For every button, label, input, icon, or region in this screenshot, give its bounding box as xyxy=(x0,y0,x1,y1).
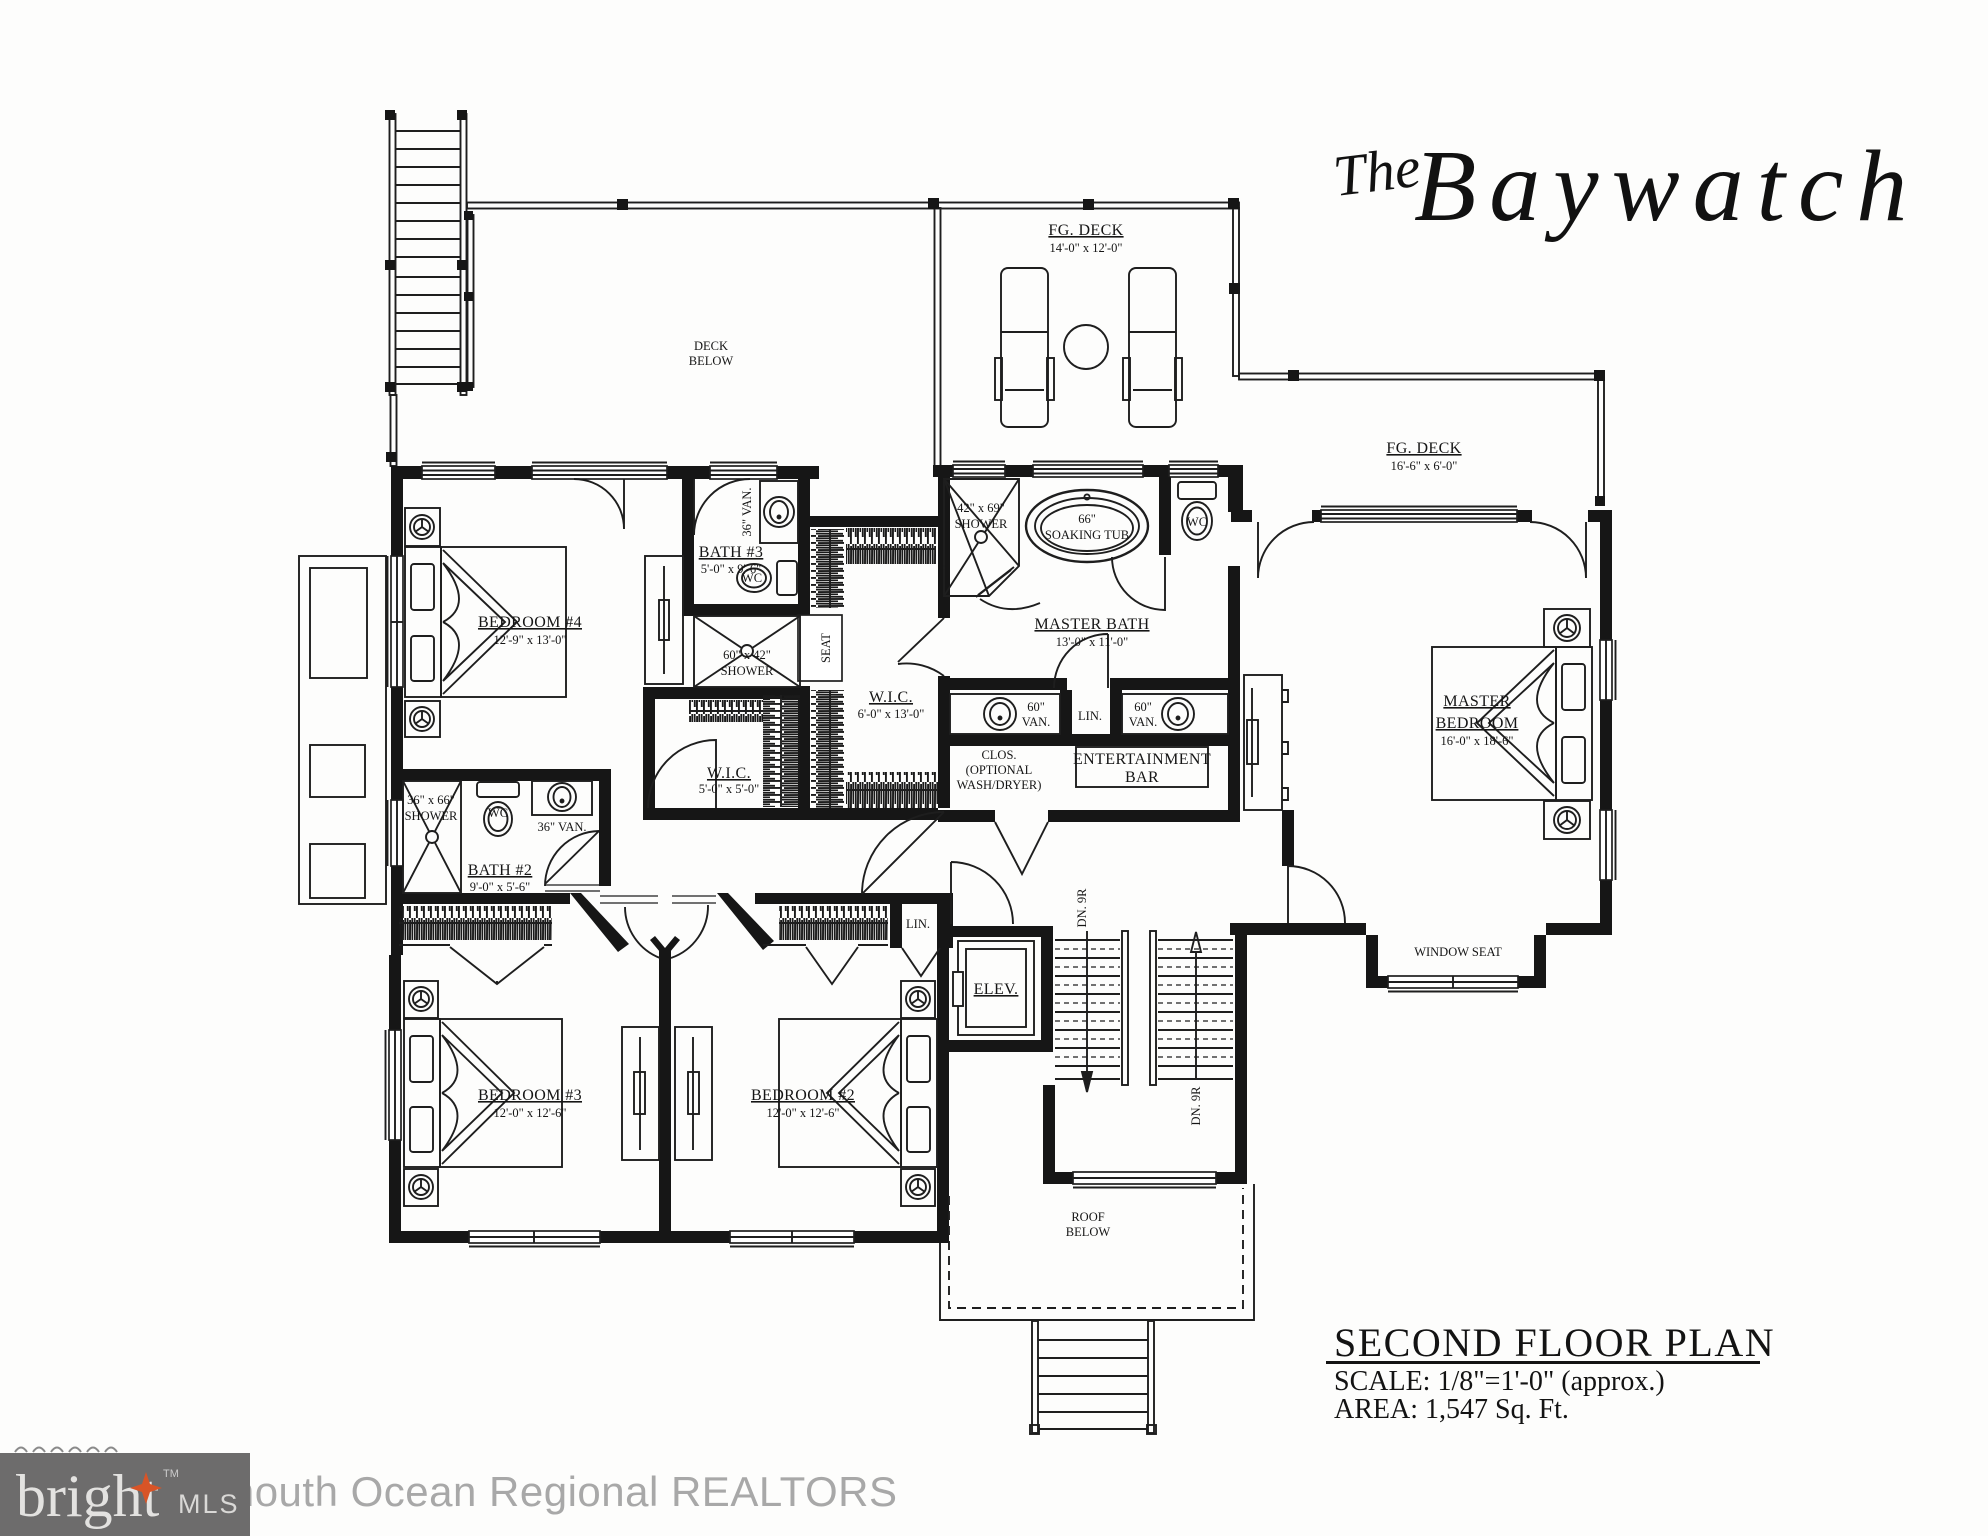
svg-text:16'-0" x 18'-6": 16'-0" x 18'-6" xyxy=(1440,734,1513,748)
svg-text:SHOWER: SHOWER xyxy=(955,517,1008,531)
svg-text:BELOW: BELOW xyxy=(1066,1225,1111,1239)
svg-text:9'-0" x 5'-6": 9'-0" x 5'-6" xyxy=(470,880,531,894)
svg-text:BELOW: BELOW xyxy=(689,354,734,368)
svg-text:SOAKING TUB: SOAKING TUB xyxy=(1045,528,1129,542)
svg-text:36" VAN.: 36" VAN. xyxy=(740,487,754,536)
svg-text:SECOND FLOOR PLAN: SECOND FLOOR PLAN xyxy=(1334,1320,1775,1365)
svg-text:14'-0" x 12'-0": 14'-0" x 12'-0" xyxy=(1049,241,1122,255)
svg-text:(OPTIONAL: (OPTIONAL xyxy=(966,763,1033,777)
svg-text:Monmouth Ocean Regional REALTO: Monmouth Ocean Regional REALTORS xyxy=(136,1468,897,1515)
svg-text:WASH/DRYER): WASH/DRYER) xyxy=(957,778,1042,792)
svg-text:SHOWER: SHOWER xyxy=(721,664,774,678)
svg-text:TM: TM xyxy=(163,1468,179,1480)
svg-text:12'-0" x 12'-6": 12'-0" x 12'-6" xyxy=(493,1106,566,1120)
svg-text:WINDOW SEAT: WINDOW SEAT xyxy=(1414,945,1502,959)
svg-text:LIN.: LIN. xyxy=(906,917,930,931)
svg-text:FG. DECK: FG. DECK xyxy=(1386,440,1461,457)
svg-text:The: The xyxy=(1330,134,1424,209)
svg-text:BATH #2: BATH #2 xyxy=(468,862,533,879)
svg-text:WC: WC xyxy=(488,806,508,820)
svg-text:VAN.: VAN. xyxy=(1022,715,1051,729)
svg-text:MASTER: MASTER xyxy=(1443,693,1510,710)
svg-text:6'-0" x 13'-0": 6'-0" x 13'-0" xyxy=(858,707,925,721)
svg-text:BEDROOM: BEDROOM xyxy=(1436,715,1519,732)
svg-text:VAN.: VAN. xyxy=(1129,715,1158,729)
svg-text:60": 60" xyxy=(1134,700,1152,714)
svg-text:ROOF: ROOF xyxy=(1071,1210,1104,1224)
svg-text:42" x 69": 42" x 69" xyxy=(957,501,1005,515)
svg-text:BEDROOM #4: BEDROOM #4 xyxy=(478,614,582,631)
svg-text:DN. 9R: DN. 9R xyxy=(1075,888,1089,928)
svg-text:12'-9" x 13'-0": 12'-9" x 13'-0" xyxy=(493,633,566,647)
svg-text:60" x 42": 60" x 42" xyxy=(723,648,771,662)
svg-text:36" VAN.: 36" VAN. xyxy=(537,820,586,834)
svg-text:DECK: DECK xyxy=(694,339,728,353)
svg-text:BAR: BAR xyxy=(1125,769,1159,786)
svg-text:ENTERTAINMENT: ENTERTAINMENT xyxy=(1073,751,1211,768)
svg-text:66": 66" xyxy=(1078,512,1096,526)
svg-text:13'-0" x 11'-0": 13'-0" x 11'-0" xyxy=(1056,635,1129,649)
svg-text:16'-6" x 6'-0": 16'-6" x 6'-0" xyxy=(1391,459,1458,473)
svg-text:bright: bright xyxy=(16,1463,160,1529)
svg-text:SCALE: 1/8"=1'-0" (approx.): SCALE: 1/8"=1'-0" (approx.) xyxy=(1334,1366,1665,1397)
svg-text:FG. DECK: FG. DECK xyxy=(1048,222,1123,239)
svg-text:W.I.C.: W.I.C. xyxy=(707,765,751,782)
svg-text:36" x 66": 36" x 66" xyxy=(407,793,455,807)
svg-text:WC: WC xyxy=(1187,515,1207,529)
svg-text:SHOWER: SHOWER xyxy=(405,809,458,823)
svg-text:WC: WC xyxy=(742,571,762,585)
svg-text:AREA: 1,547 Sq. Ft.: AREA: 1,547 Sq. Ft. xyxy=(1334,1394,1569,1425)
svg-text:Baywatch: Baywatch xyxy=(1414,130,1920,243)
svg-text:ELEV.: ELEV. xyxy=(974,981,1019,998)
svg-text:12'-0" x 12'-6": 12'-0" x 12'-6" xyxy=(766,1106,839,1120)
svg-text:DN. 9R: DN. 9R xyxy=(1189,1086,1203,1126)
svg-text:W.I.C.: W.I.C. xyxy=(869,689,913,706)
svg-text:SEAT: SEAT xyxy=(819,633,833,663)
svg-text:MASTER BATH: MASTER BATH xyxy=(1034,616,1149,633)
svg-text:BEDROOM #3: BEDROOM #3 xyxy=(478,1087,582,1104)
svg-text:MLS: MLS xyxy=(178,1489,240,1519)
svg-text:5'-0" x 5'-0": 5'-0" x 5'-0" xyxy=(699,782,760,796)
svg-text:BATH #3: BATH #3 xyxy=(699,544,764,561)
svg-text:CLOS.: CLOS. xyxy=(981,748,1016,762)
svg-text:BEDROOM #2: BEDROOM #2 xyxy=(751,1087,855,1104)
svg-text:60": 60" xyxy=(1027,700,1045,714)
svg-text:LIN.: LIN. xyxy=(1078,709,1102,723)
